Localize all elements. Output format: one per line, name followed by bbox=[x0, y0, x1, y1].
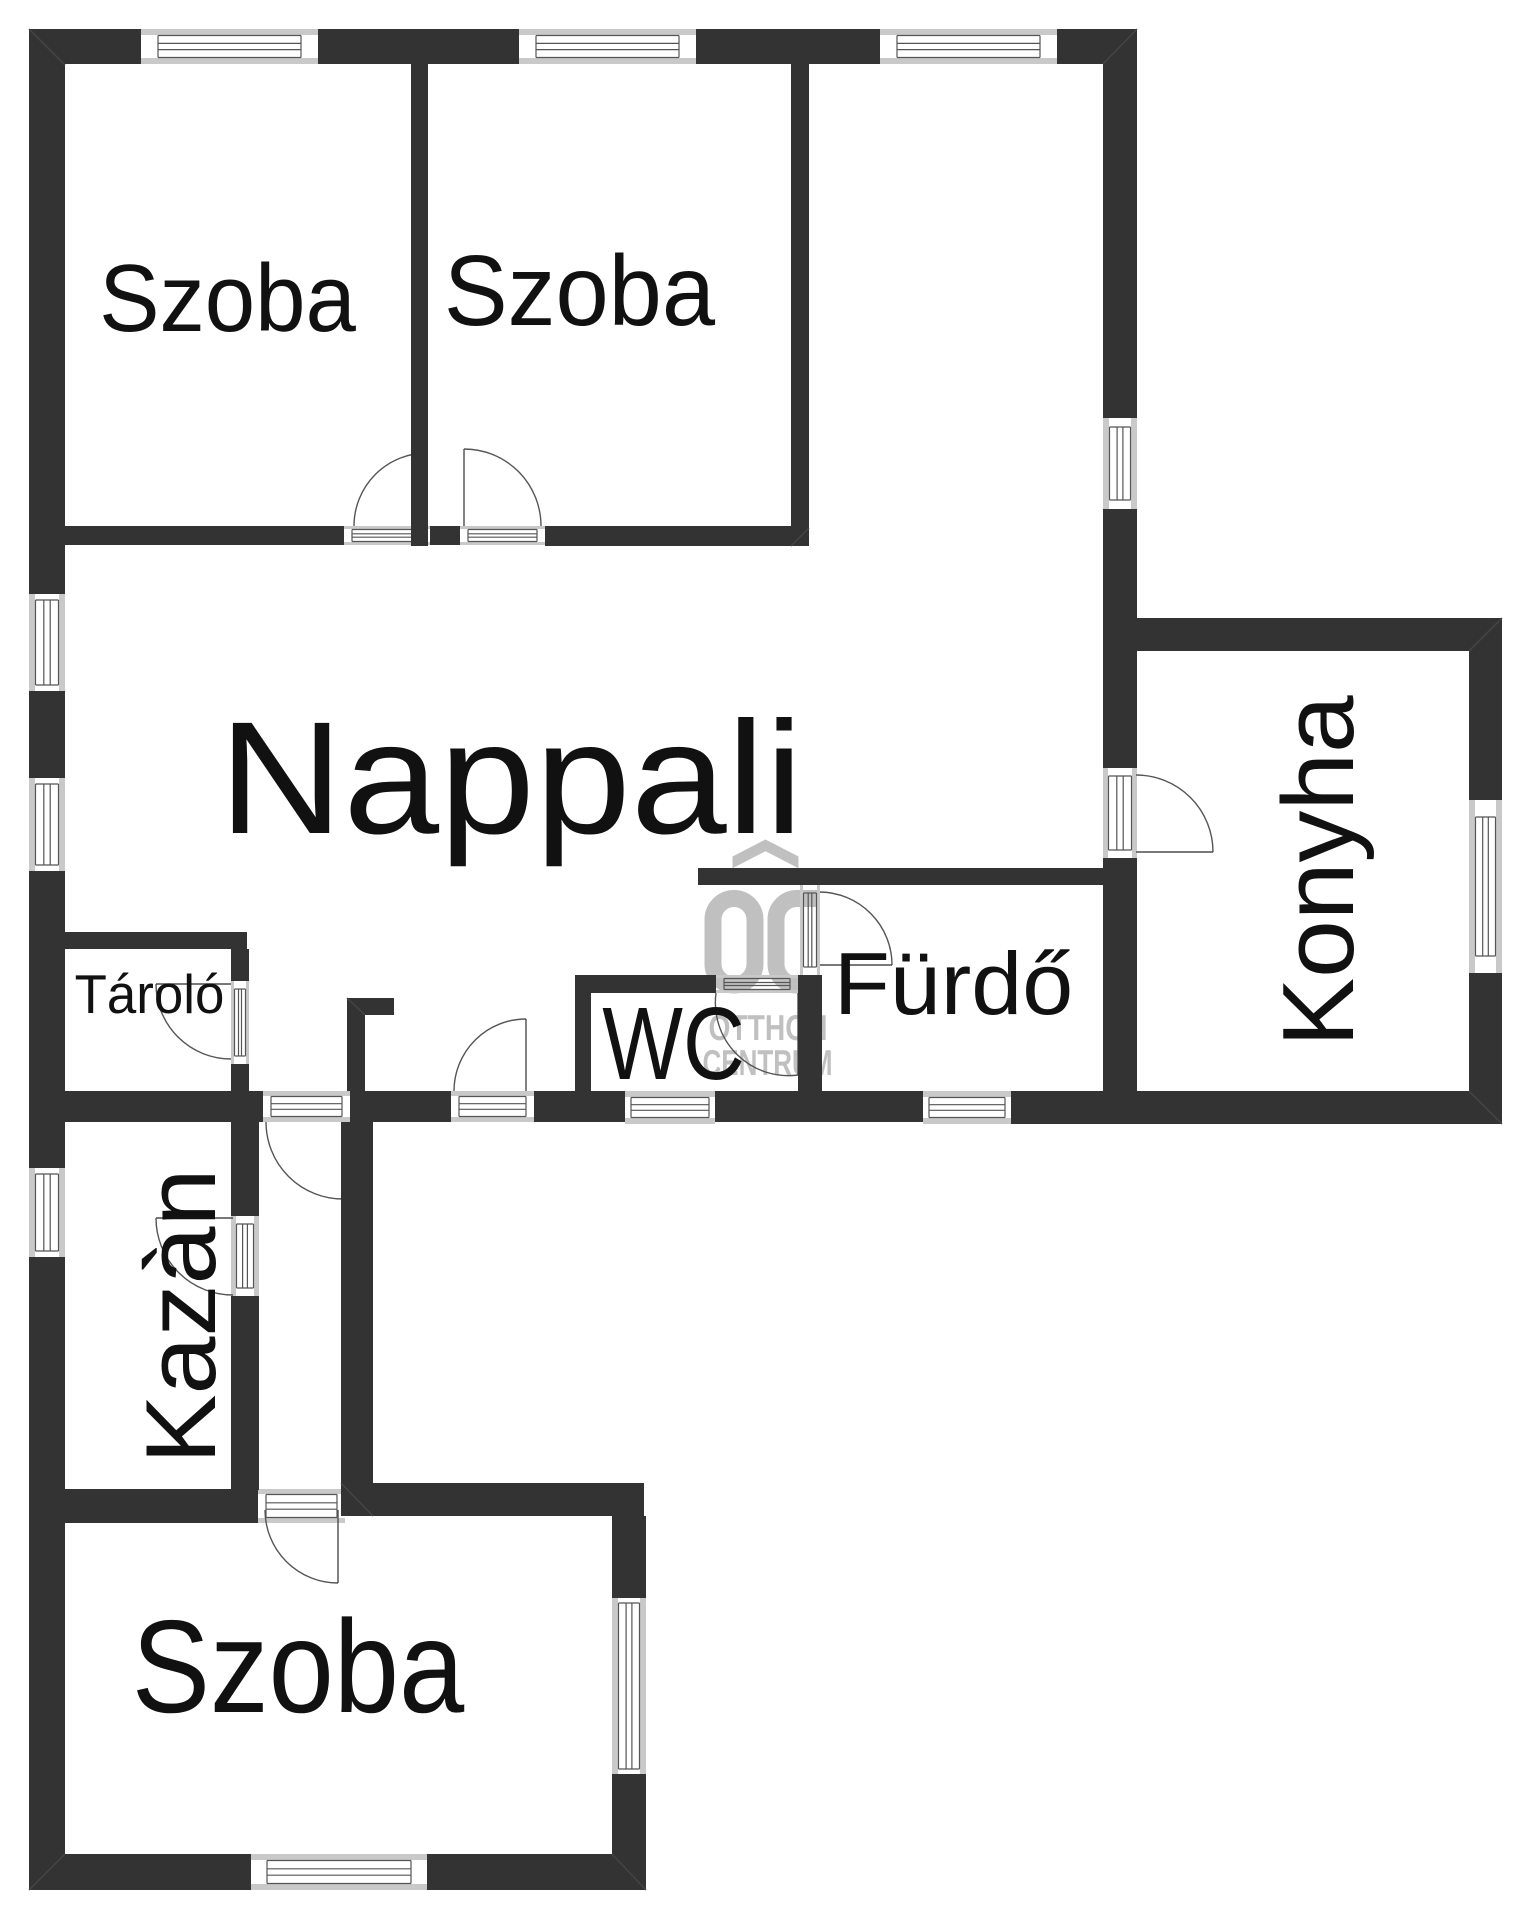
svg-text:Konyha: Konyha bbox=[1261, 695, 1374, 1047]
svg-text:WC: WC bbox=[602, 987, 744, 1102]
svg-text:Szoba: Szoba bbox=[99, 245, 356, 352]
svg-text:Szoba: Szoba bbox=[444, 234, 716, 346]
svg-text:Nappali: Nappali bbox=[219, 689, 803, 868]
svg-text:Szoba: Szoba bbox=[132, 1594, 465, 1741]
svg-text:Kazàn: Kazàn bbox=[125, 1169, 236, 1464]
svg-text:Fürdő: Fürdő bbox=[834, 936, 1073, 1034]
svg-text:Tároló: Tároló bbox=[75, 964, 225, 1025]
